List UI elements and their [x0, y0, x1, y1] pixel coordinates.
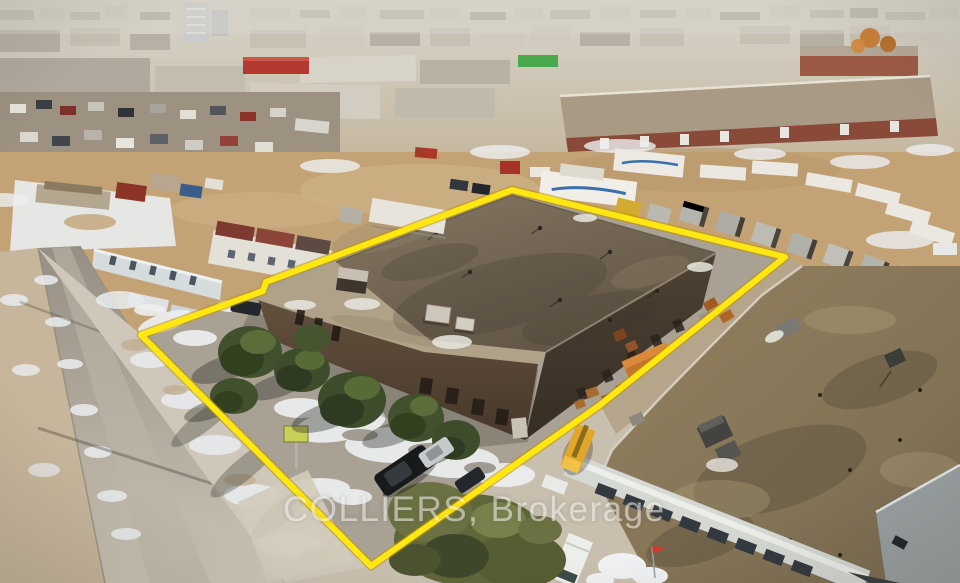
vignette	[0, 0, 960, 583]
aerial-photo-canvas	[0, 0, 960, 583]
aerial-photo: COLLIERS, Brokerage	[0, 0, 960, 583]
